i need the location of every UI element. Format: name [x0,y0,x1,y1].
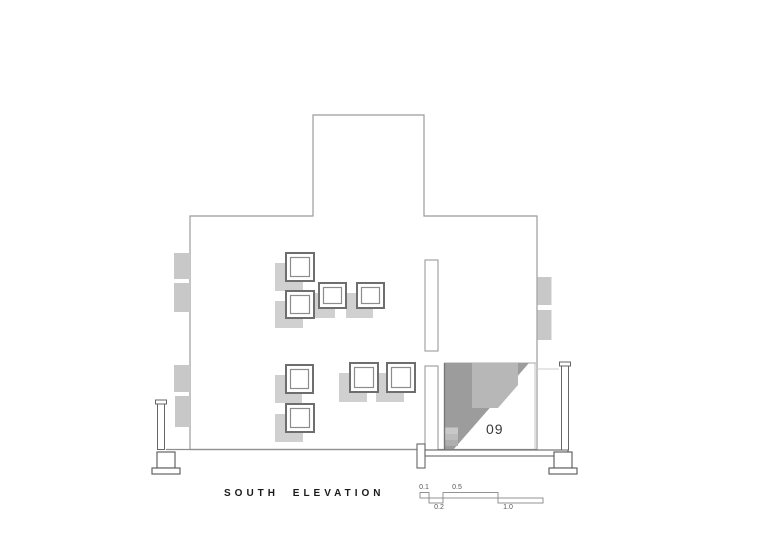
elevation-drawing [0,0,780,552]
room-number-label: 09 [486,421,504,437]
slot-window-lower [425,366,438,450]
scale-label-10: 1.0 [503,504,513,511]
scale-label-01: 0.1 [419,484,429,491]
window [387,363,415,392]
window [350,363,378,392]
left-balcony-blocks [174,253,190,427]
window [357,283,384,308]
entry-steps [444,428,458,447]
elevation-sheet: SOUTH ELEVATION 09 0.1 0.5 0.2 1.0 [0,0,780,552]
scale-label-02: 0.2 [434,504,444,511]
window [286,253,314,281]
drawing-title: SOUTH ELEVATION [224,488,385,499]
window [286,365,313,393]
center-post [417,444,425,468]
window [286,404,314,432]
slot-window-upper [425,260,438,351]
scale-bar [420,493,543,504]
window [319,283,346,308]
right-pillar [537,362,577,474]
scale-label-05: 0.5 [452,484,462,491]
terrace-slab [425,450,568,456]
window [286,291,314,318]
right-balcony-blocks [538,277,552,340]
